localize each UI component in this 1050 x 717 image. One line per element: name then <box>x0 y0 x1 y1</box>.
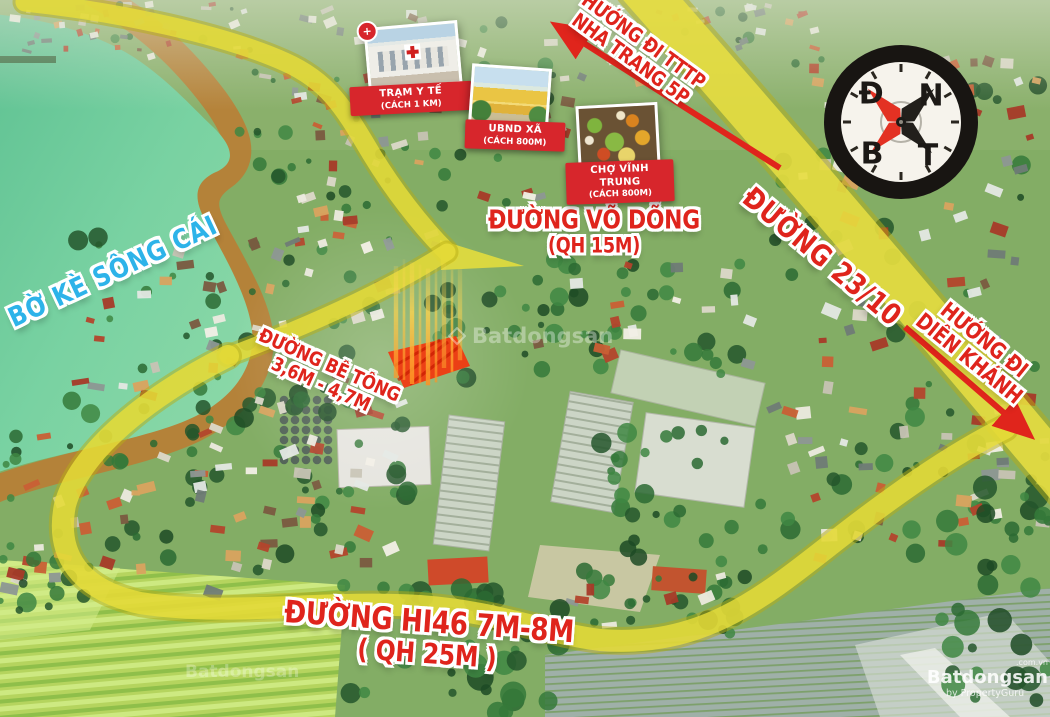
watermark-bottom-right: .com.vn Batdongsan by PropertyGuru <box>922 658 1048 699</box>
watermark-center: Batdongsan <box>448 324 613 348</box>
road-label-vo-dong: ĐƯỜNG VÕ DÕNG (QH 15M) <box>488 207 700 258</box>
batdongsan-logo-icon <box>922 669 923 686</box>
aerial-photo-map: Đ N B T HƯỚNG ĐI TTTP NHA TRANG 5P ĐƯỜNG… <box>0 0 1050 717</box>
watermark-byline: by PropertyGuru <box>946 688 1048 699</box>
compass-label-t: T <box>918 139 939 174</box>
compass: Đ N B T <box>824 45 978 199</box>
red-cross-icon <box>404 44 421 61</box>
compass-label-n: N <box>918 79 943 114</box>
compass-label-b: B <box>861 137 884 172</box>
watermark-domain: .com.vn <box>922 658 1048 667</box>
poi-banner-market: CHỢ VĨNH TRUNG (CÁCH 800M) <box>565 159 674 204</box>
watermark-brand: Batdongsan <box>927 667 1048 688</box>
watermark-center-low: Batdongsan <box>185 662 299 682</box>
batdongsan-logo-icon <box>448 327 466 345</box>
compass-label-east: Đ <box>858 77 883 112</box>
poi-banner-commune-office: UBND XÃ (CÁCH 800M) <box>465 119 566 152</box>
